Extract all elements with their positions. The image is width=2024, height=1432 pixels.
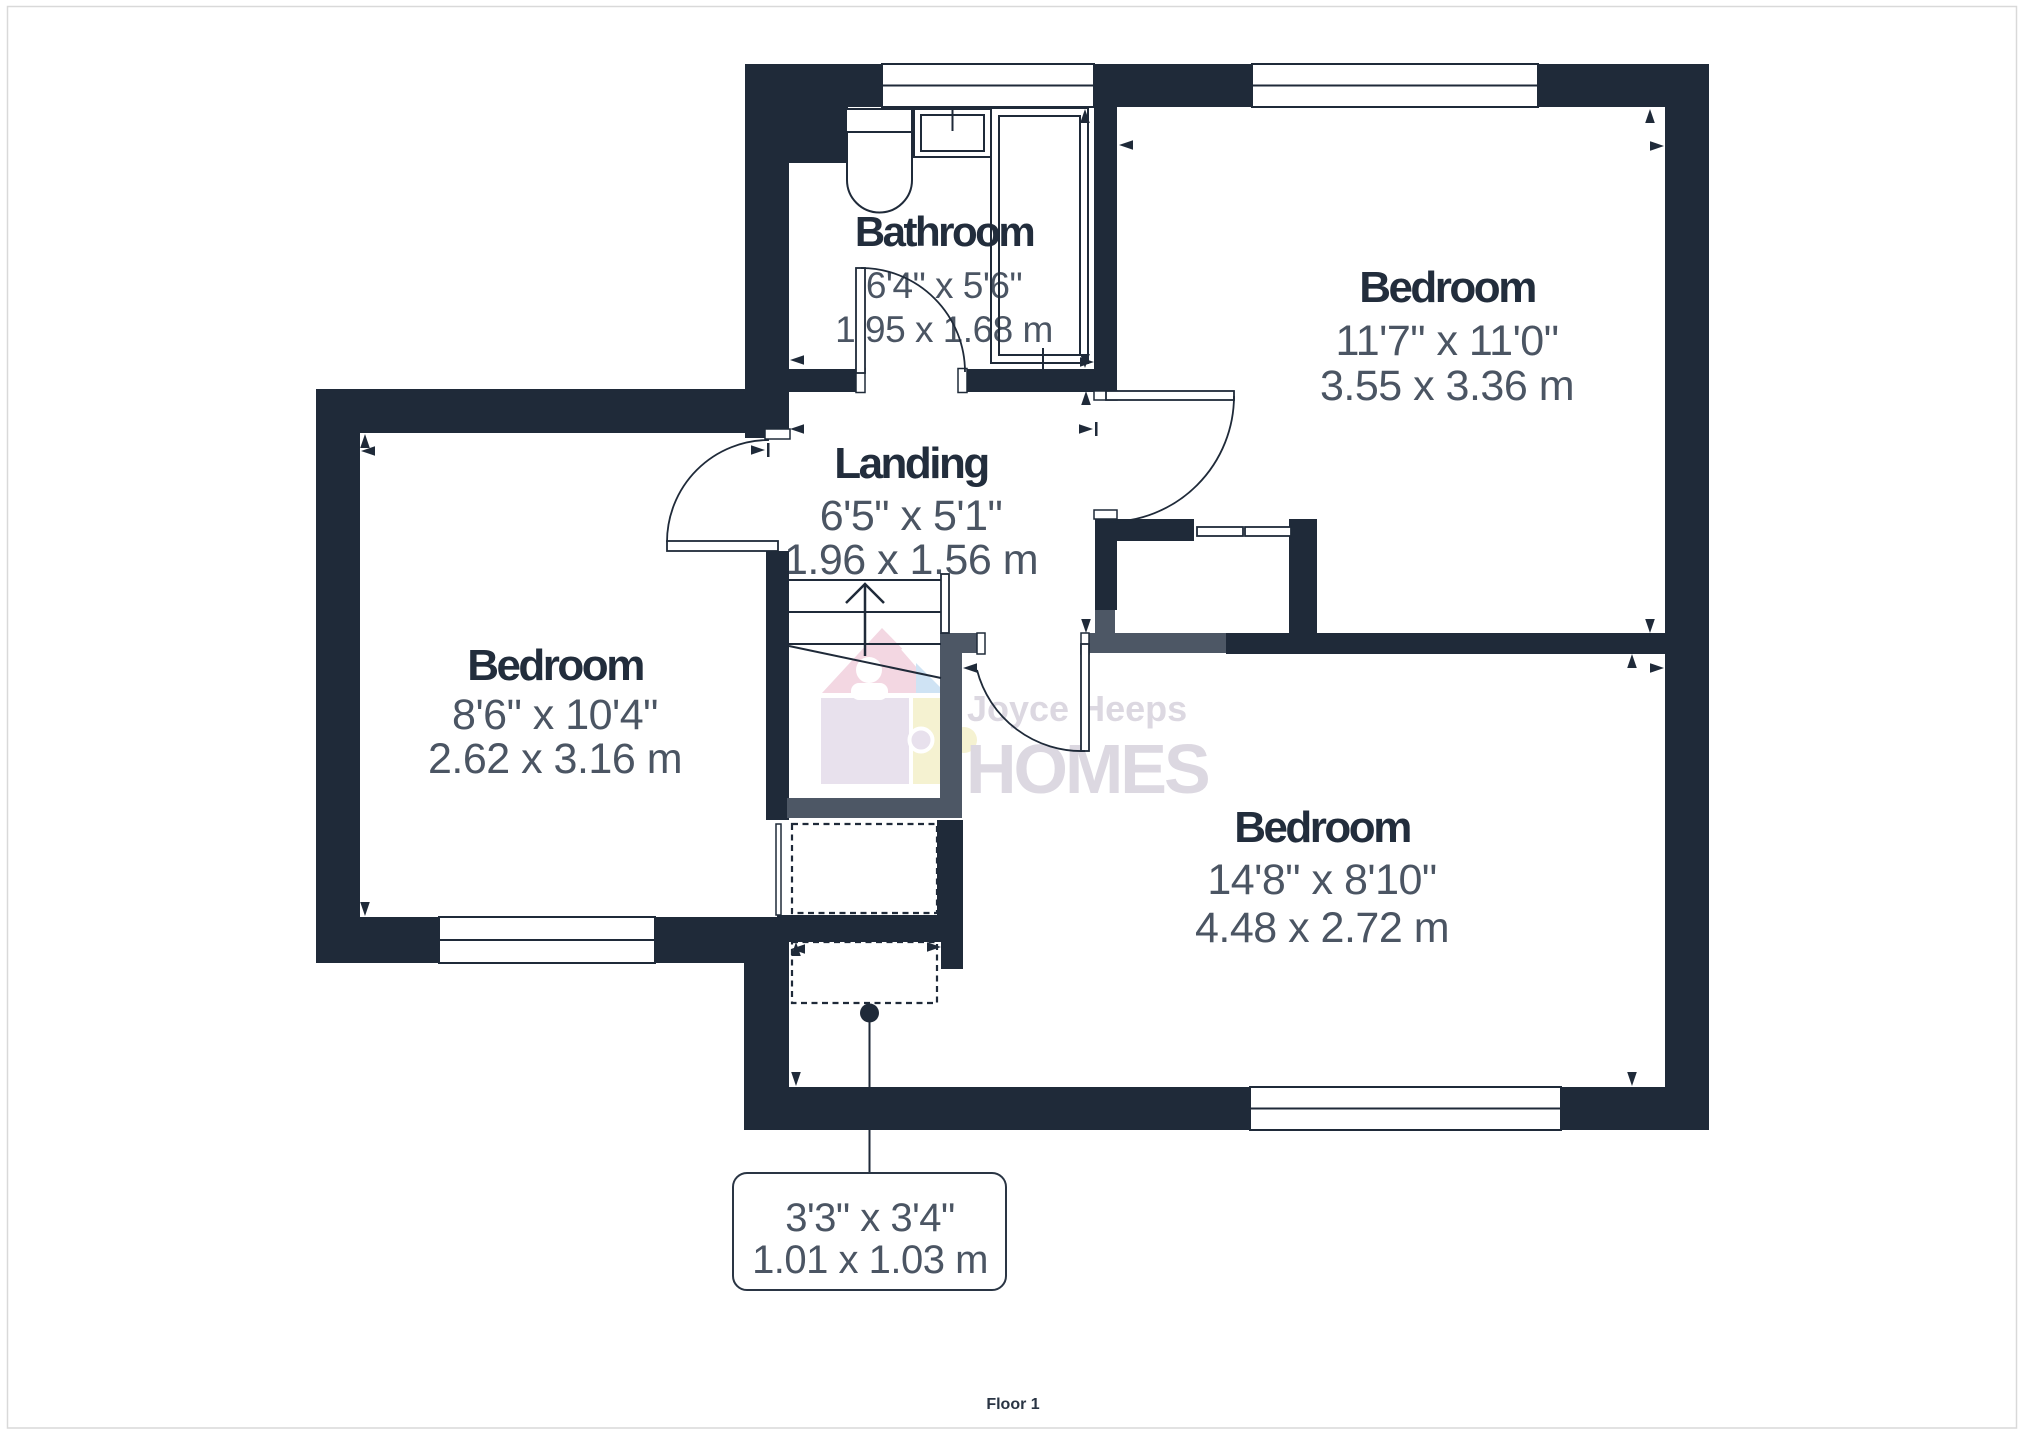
svg-text:6'5" x 5'1": 6'5" x 5'1": [820, 492, 1003, 540]
svg-text:Landing: Landing: [834, 439, 988, 488]
svg-text:8'6" x 10'4": 8'6" x 10'4": [452, 691, 658, 739]
svg-text:14'8" x 8'10": 14'8" x 8'10": [1207, 856, 1436, 904]
svg-text:Floor 1: Floor 1: [986, 1396, 1039, 1413]
svg-text:2.62 x 3.16 m: 2.62 x 3.16 m: [428, 735, 682, 783]
svg-text:Bedroom: Bedroom: [1359, 263, 1535, 312]
svg-text:Bedroom: Bedroom: [467, 641, 643, 690]
svg-text:Bathroom: Bathroom: [855, 208, 1033, 255]
svg-text:1.95 x 1.68 m: 1.95 x 1.68 m: [835, 309, 1053, 350]
svg-text:1.96 x 1.56 m: 1.96 x 1.56 m: [784, 536, 1038, 584]
svg-text:4.48 x 2.72 m: 4.48 x 2.72 m: [1195, 904, 1449, 952]
svg-text:1.01 x 1.03 m: 1.01 x 1.03 m: [752, 1238, 988, 1282]
svg-text:Bedroom: Bedroom: [1234, 803, 1410, 852]
svg-text:Joyce Heeps: Joyce Heeps: [967, 688, 1187, 729]
svg-text:11'7" x 11'0": 11'7" x 11'0": [1336, 317, 1559, 365]
svg-text:3.55 x 3.36 m: 3.55 x 3.36 m: [1320, 362, 1574, 410]
svg-text:3'3" x 3'4": 3'3" x 3'4": [785, 1196, 954, 1240]
